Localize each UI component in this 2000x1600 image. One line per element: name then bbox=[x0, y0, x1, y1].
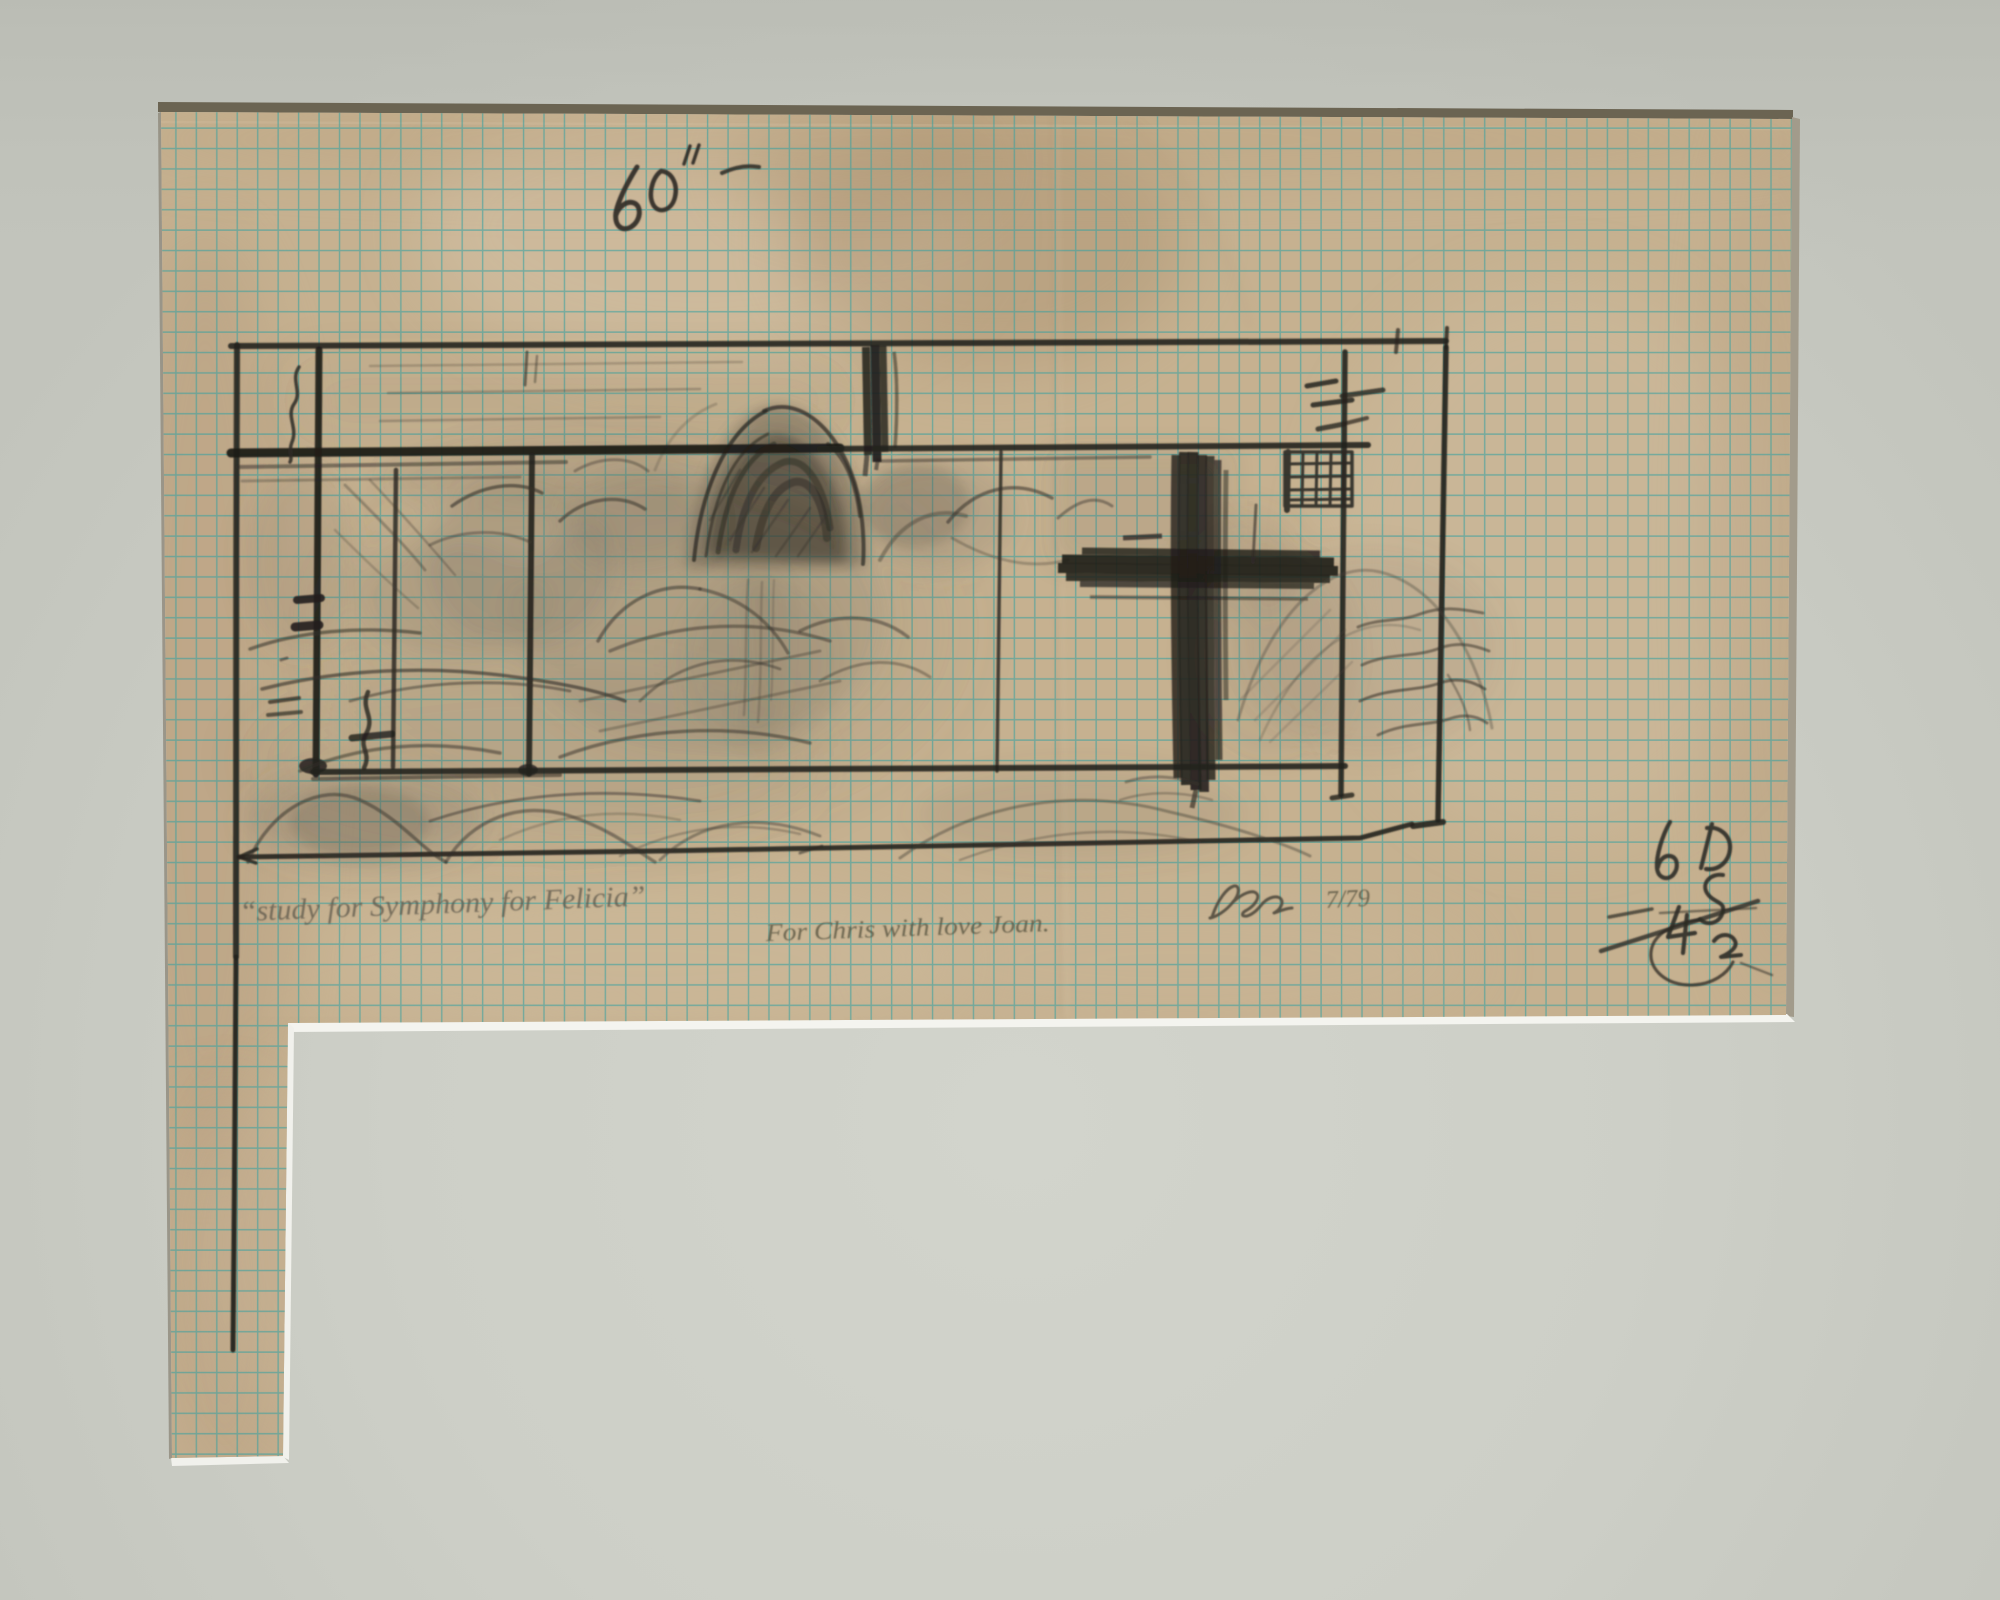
svg-text:7/79: 7/79 bbox=[1325, 885, 1371, 914]
